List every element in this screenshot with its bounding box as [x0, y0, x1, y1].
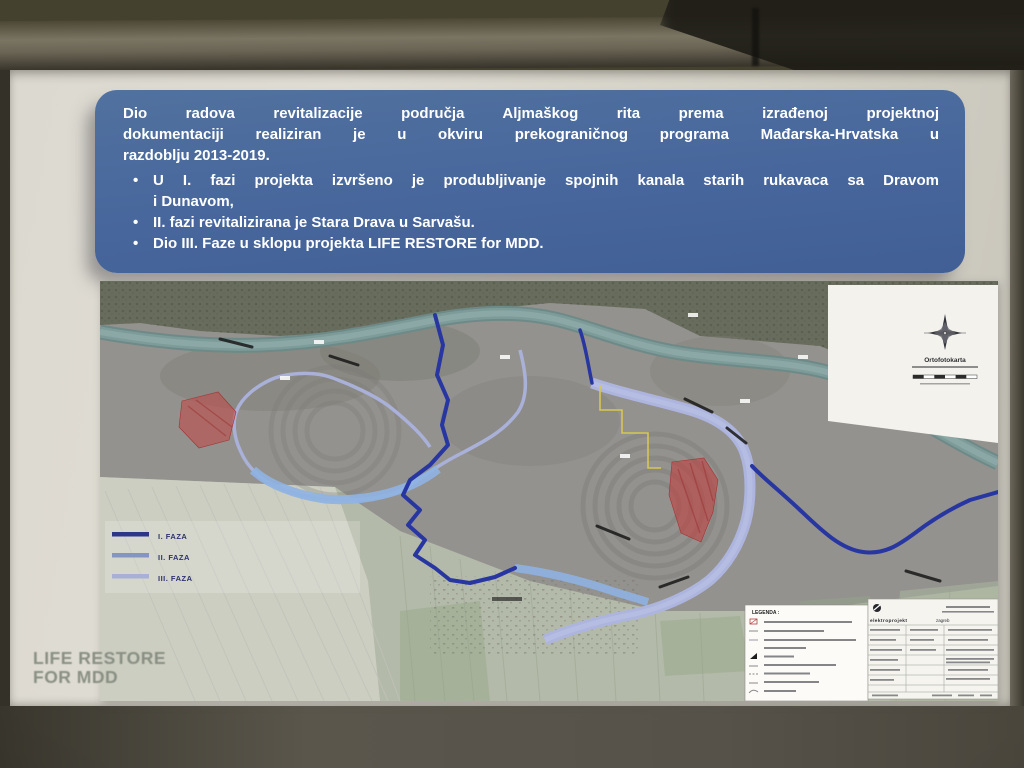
inset-title: Ortofotokarta	[924, 357, 966, 364]
slide-header-box: Dio radova revitalizacije područja Aljma…	[95, 90, 965, 273]
photo-of-projection: Dio radova revitalizacije područja Aljma…	[0, 0, 1024, 768]
phase3-swatch	[112, 574, 149, 579]
bullet-text: Dio III. Faze u sklopu projekta LIFE RES…	[153, 233, 939, 254]
bullet-text: U I. fazi projekta izvršeno je produblji…	[153, 170, 939, 191]
header-paragraph: Dio radova revitalizacije područja Aljma…	[123, 103, 939, 166]
phase1-swatch	[112, 532, 149, 537]
phase1-label: I. FAZA	[158, 532, 187, 541]
wall-below-screen	[0, 706, 1024, 768]
bullet-text: i Dunavom,	[153, 191, 939, 212]
inset-bg	[828, 285, 998, 443]
title-block: elektroprojekt zagreb	[868, 599, 998, 699]
map-svg: I. FAZA II. FAZA III. FAZA Ortofotokarta	[100, 281, 998, 701]
phase2-label: II. FAZA	[158, 553, 190, 562]
bullet-marker: •	[133, 233, 138, 254]
village-name-label	[492, 597, 522, 601]
map-legend-box: LEGENDA :	[745, 605, 868, 701]
floodplain-shade	[440, 376, 620, 466]
phase-legend: I. FAZA II. FAZA III. FAZA	[105, 521, 360, 593]
paragraph-line: dokumentaciji realiziran je u okviru pre…	[123, 124, 939, 145]
cable-mark	[752, 8, 759, 66]
bullet-text: II. fazi revitalizirana je Stara Drava u…	[153, 212, 939, 233]
paragraph-line: Dio radova revitalizacije područja Aljma…	[123, 103, 939, 124]
bullet-list: • U I. fazi projekta izvršeno je produbl…	[123, 170, 939, 254]
company-city: zagreb	[936, 618, 950, 623]
scale-caption-blur	[920, 383, 970, 385]
bullet-item: • Dio III. Faze u sklopu projekta LIFE R…	[123, 233, 939, 254]
bullet-item: • II. fazi revitalizirana je Stara Drava…	[123, 212, 939, 233]
logo-line-1: LIFE RESTORE	[33, 649, 166, 668]
bullet-marker: •	[133, 212, 138, 233]
project-map: I. FAZA II. FAZA III. FAZA Ortofotokarta	[100, 281, 998, 701]
scale-bar	[913, 375, 977, 379]
phase3-label: III. FAZA	[158, 574, 193, 583]
paragraph-line: razdoblju 2013-2019.	[123, 145, 939, 166]
company-name: elektroprojekt	[870, 618, 907, 624]
inset-subtitle-blur	[912, 366, 978, 368]
legend-box-title: LEGENDA :	[752, 610, 780, 616]
field-patch	[660, 616, 750, 676]
screen-right-edge	[1010, 70, 1024, 710]
bullet-item: • U I. fazi projekta izvršeno je produbl…	[123, 170, 939, 212]
bullet-marker: •	[133, 170, 138, 191]
logo-line-2: FOR MDD	[33, 668, 166, 687]
life-restore-logo: LIFE RESTORE FOR MDD	[33, 649, 166, 687]
inset-panel: Ortofotokarta	[828, 285, 998, 443]
phase2-swatch	[112, 553, 149, 558]
screen-left-edge	[0, 70, 10, 710]
